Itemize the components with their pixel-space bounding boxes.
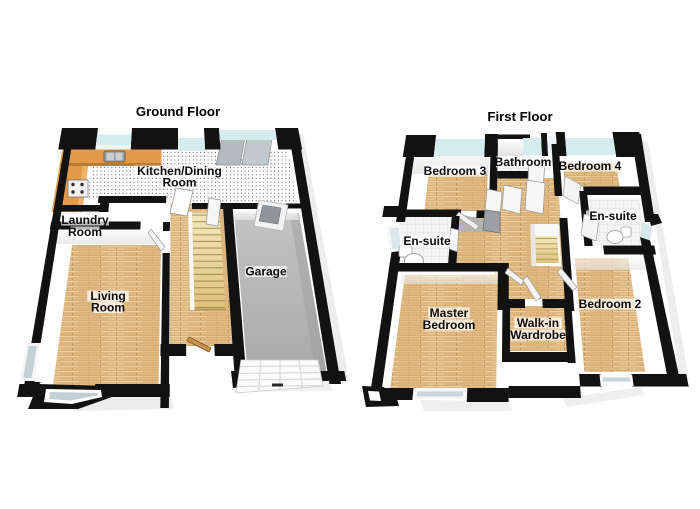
svg-text:Room: Room [91,301,125,315]
svg-text:Room: Room [68,225,102,239]
svg-text:En-suite: En-suite [589,209,637,223]
svg-text:Bedroom: Bedroom [423,318,476,332]
svg-text:Ground Floor: Ground Floor [136,104,220,119]
svg-text:Bedroom 4: Bedroom 4 [559,159,622,173]
svg-text:First Floor: First Floor [487,109,552,124]
svg-text:Garage: Garage [245,265,287,279]
svg-text:Room: Room [163,176,197,190]
svg-text:Bedroom 2: Bedroom 2 [579,297,642,311]
svg-text:Wardrobe: Wardrobe [510,328,566,342]
svg-text:En-suite: En-suite [403,234,451,248]
svg-text:Bedroom 3: Bedroom 3 [424,164,487,178]
svg-text:Bathroom: Bathroom [495,155,552,169]
